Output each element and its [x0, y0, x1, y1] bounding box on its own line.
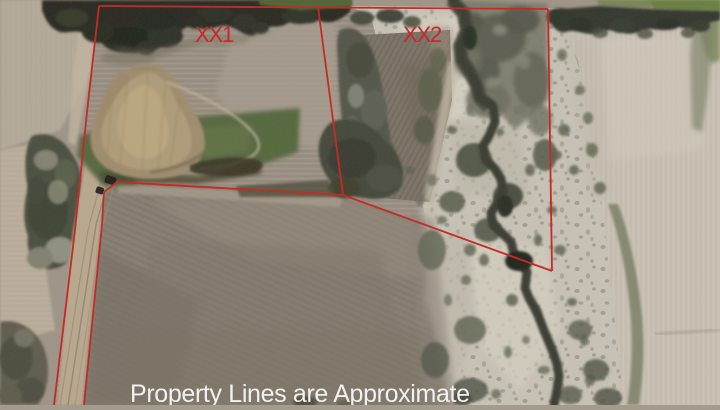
svg-text:Property Lines are Approximate: Property Lines are Approximate — [130, 380, 470, 405]
svg-text:XX1: XX1 — [195, 22, 234, 47]
svg-text:XX2: XX2 — [403, 22, 442, 47]
